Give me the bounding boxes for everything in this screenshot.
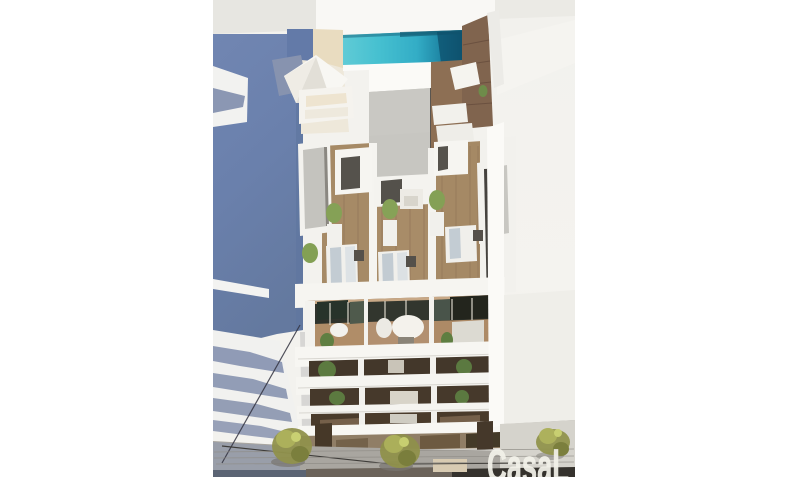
svg-text:CasaL: CasaL — [487, 439, 569, 477]
